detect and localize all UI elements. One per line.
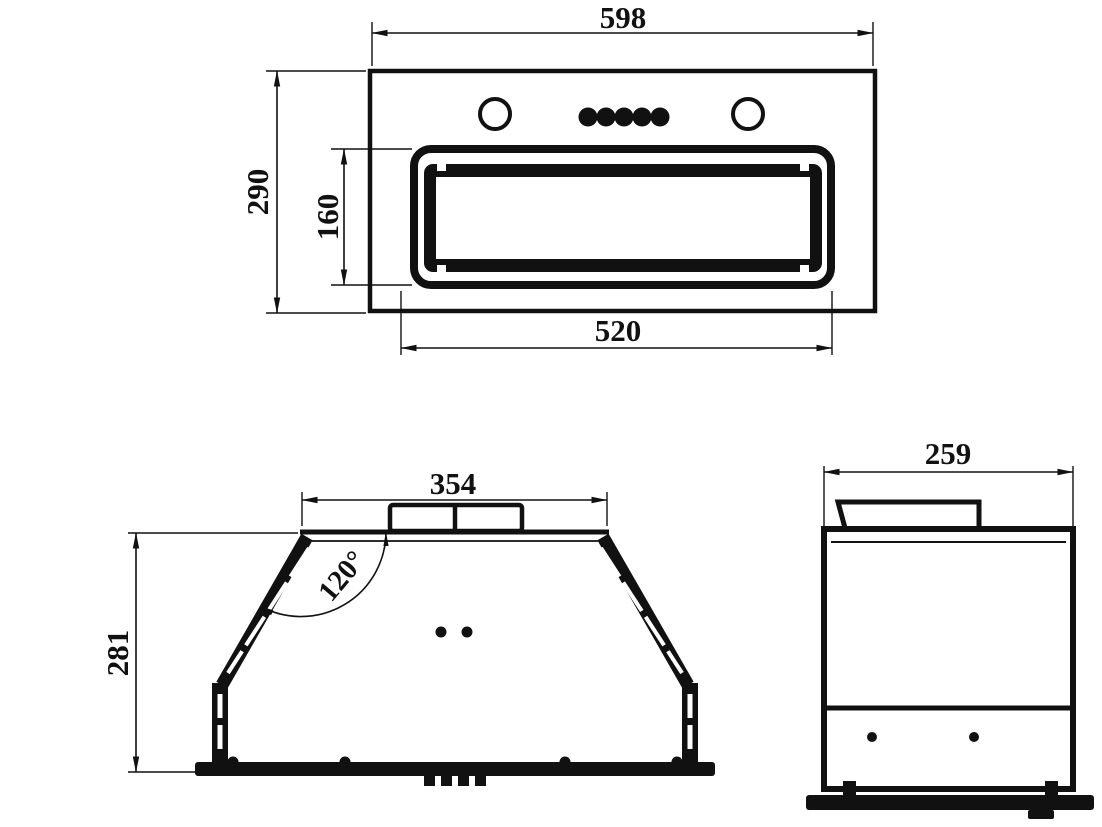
screw-bump (228, 757, 239, 768)
side-bottom-foot (1028, 810, 1054, 819)
dimension-label-259: 259 (925, 436, 972, 471)
dimension-front-height: 290 (240, 71, 366, 313)
side-foot-tab (1045, 781, 1058, 795)
rivet-dot (436, 627, 447, 638)
dimension-label-520: 520 (595, 313, 642, 348)
grease-filter-panel (414, 149, 831, 285)
angle-label-120: 120° (312, 545, 372, 608)
filter-notch (437, 164, 446, 171)
dimension-label-281: 281 (100, 630, 135, 677)
technical-drawing-svg: 598 290 160 520 (0, 0, 1102, 827)
dimension-label-598: 598 (600, 0, 647, 35)
profile-view (195, 505, 715, 786)
tab (441, 776, 452, 786)
screw-bump (672, 757, 683, 768)
button-dot-icon (615, 108, 634, 127)
bottom-tabs (424, 776, 486, 786)
button-dot-icon (597, 108, 616, 127)
screw-bump (340, 757, 351, 768)
button-dot-icon (579, 108, 598, 127)
dimension-profile-height: 281 (100, 533, 298, 772)
rivet-dot (867, 732, 877, 742)
drawing-canvas: 598 290 160 520 (0, 0, 1102, 827)
side-base-plate (806, 795, 1094, 810)
control-buttons (579, 108, 670, 127)
rivet-dots (436, 627, 473, 638)
side-foot-tab (843, 781, 856, 795)
front-view (370, 71, 875, 311)
dimension-label-290: 290 (240, 169, 275, 216)
filter-notch (800, 164, 809, 171)
screw-bump (560, 757, 571, 768)
tab (475, 776, 486, 786)
button-dot-icon (633, 108, 652, 127)
button-dot-icon (651, 108, 670, 127)
base-plate (195, 762, 715, 776)
tab (424, 776, 435, 786)
filter-notch (800, 265, 809, 272)
rivet-dot (969, 732, 979, 742)
dimension-depth: 259 (824, 436, 1073, 526)
side-body-outline (824, 529, 1073, 789)
side-view (806, 502, 1094, 819)
filter-window (436, 177, 810, 259)
dimension-front-width: 598 (372, 0, 873, 66)
side-duct-collar (838, 502, 979, 528)
dimension-label-354: 354 (430, 466, 477, 501)
right-slant-slot (601, 548, 682, 673)
tab (458, 776, 469, 786)
filter-notch (437, 265, 446, 272)
dimension-label-160: 160 (310, 194, 345, 241)
rivet-dot (462, 627, 473, 638)
